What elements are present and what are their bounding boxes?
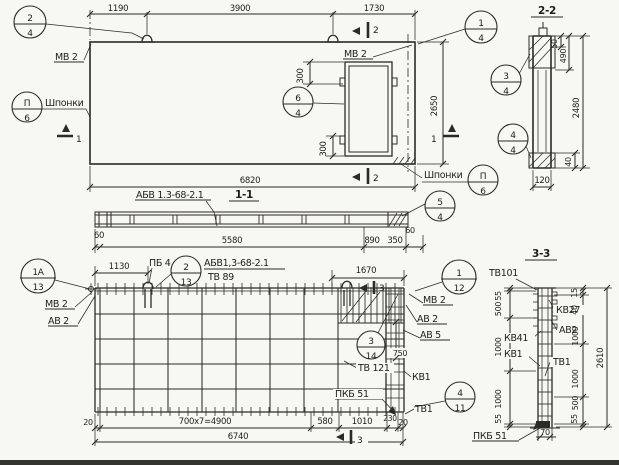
dim-3900: 3900 (230, 4, 250, 14)
callout-num: 4 (510, 131, 516, 141)
leader-lines (42, 24, 468, 182)
callout-num: 2 (183, 263, 188, 273)
dim-500: 500 (571, 396, 580, 411)
callout-1-12: 1 12 (441, 260, 477, 294)
label-mv2-right: МВ 2 (423, 295, 446, 306)
dim-350: 350 (387, 236, 402, 246)
callout-den: 6 (24, 114, 30, 124)
dim-40: 40 (564, 157, 573, 167)
label-pkb51: ПКБ 51 (335, 389, 369, 400)
label-pkb51: ПКБ 51 (473, 431, 507, 442)
dim-1000: 1000 (494, 337, 503, 356)
callout-3-4: 3 4 (491, 65, 521, 97)
cut-digit-2: 2 (373, 174, 378, 184)
dim-1000: 1000 (494, 389, 503, 408)
callout-2-13: 2 13 (171, 256, 201, 288)
callout-num: 6 (295, 94, 301, 104)
cut-arrow (448, 124, 456, 132)
callout-4-4: 4 4 (498, 124, 528, 156)
cut-digit-3: 3 (357, 436, 362, 446)
rebar-mesh-subtitle: ТВ 89 (207, 272, 234, 283)
dim-1730: 1730 (364, 4, 384, 14)
cut-digit-2: 2 (373, 26, 378, 36)
label-underlines (54, 59, 373, 62)
panel-outline (90, 42, 415, 164)
key-tooth (552, 292, 557, 296)
callout-den: 4 (295, 109, 301, 119)
callout-num: 5 (437, 198, 442, 208)
member-bars (542, 288, 548, 428)
dim-1130: 1130 (109, 262, 129, 272)
dim-1000: 1000 (571, 369, 580, 388)
callout-num: 1 (456, 269, 461, 279)
label-mv2-left: МВ 2 (45, 299, 68, 310)
callout-4-11: 4 11 (445, 382, 475, 414)
callout-den: 4 (437, 213, 443, 223)
member-core-lines (538, 70, 546, 152)
label-kv1: КВ1 (504, 349, 523, 360)
dim-490: 490 (559, 49, 568, 64)
dim-300-top: 300 (296, 68, 306, 83)
cut-arrow (336, 433, 344, 441)
label-tv101: ТВ101 (488, 268, 518, 279)
cut-arrow (62, 124, 70, 132)
dim-55: 55 (570, 414, 579, 424)
dim-20-left: 20 (83, 418, 93, 427)
dim-1010: 1010 (352, 417, 372, 427)
section-title: 3-3 (532, 248, 550, 260)
blueprint-sheet: 1190 3900 1730 6820 2650 300 300 МВ 2 МВ… (0, 0, 619, 465)
section-title: 2-2 (538, 5, 556, 17)
dimension-lines (90, 14, 443, 187)
dim-5580: 5580 (222, 236, 242, 246)
section-title: 1-1 (235, 189, 253, 201)
dim-60-left: 60 (94, 231, 104, 241)
cut-digit-1: 1 (76, 135, 81, 145)
key-hatch (393, 157, 415, 164)
dim-2650: 2650 (430, 96, 440, 116)
callout-2-4: 2 4 (14, 6, 46, 39)
mesh-mark-label: АБВ 1.3-68-2.1 (136, 190, 204, 201)
end-block-left (95, 212, 111, 227)
dim-2610: 2610 (596, 348, 606, 368)
cut-arrow (352, 27, 360, 35)
callout-den: 14 (366, 352, 377, 362)
dense-mesh-zone (338, 288, 404, 323)
dim-1190: 1190 (108, 4, 128, 14)
key-tooth (552, 316, 557, 320)
lifting-loop-pb4 (143, 282, 153, 308)
cut-digit-1: 1 (431, 135, 436, 145)
leader-lines (206, 201, 425, 226)
callout-den: 4 (478, 34, 484, 44)
section-2-2: 2-2 50 490 2480 40 120 3 4 4 4 (491, 5, 590, 191)
callout-1-4: 1 4 (465, 11, 497, 44)
callout-den: 4 (27, 29, 33, 39)
dim-15: 15 (570, 288, 579, 298)
label-kv1: КВ1 (412, 372, 431, 383)
callout-5-4: 5 4 (425, 191, 455, 223)
dim-4900: 700х7=4900 (179, 417, 231, 427)
callout-1a-13: 1А 13 (20, 259, 56, 293)
plan-view: 1190 3900 1730 6820 2650 300 300 МВ 2 МВ… (12, 4, 498, 197)
dim-1000: 1000 (571, 326, 580, 345)
dim-55: 55 (494, 291, 503, 301)
label-tv121: ТВ 121 (357, 363, 390, 374)
label-av2-left: АВ 2 (48, 316, 69, 327)
dim-60-right: 60 (405, 226, 415, 235)
dim-40: 40 (570, 305, 579, 315)
cut-digit-3: 3 (379, 284, 384, 294)
dim-6820: 6820 (240, 176, 260, 186)
label-av5: АВ 5 (420, 330, 441, 341)
callout-num: 4 (457, 389, 463, 399)
callout-num: 3 (368, 337, 373, 347)
label-tv1: ТВ1 (552, 357, 571, 368)
dim-750: 750 (393, 349, 408, 358)
rib-webs (130, 215, 349, 224)
dim-1670: 1670 (356, 266, 376, 276)
callout-num: 2 (27, 14, 32, 24)
callout-den: 13 (33, 283, 44, 293)
label-mv2-left: МВ 2 (55, 52, 78, 63)
slab-strip (95, 212, 408, 227)
blueprint-canvas: 1190 3900 1730 6820 2650 300 300 МВ 2 МВ… (0, 0, 619, 465)
callout-den: 13 (181, 278, 192, 288)
opening-outer (345, 62, 392, 156)
callout-6-4: 6 4 (283, 87, 313, 119)
dim-500: 500 (494, 302, 503, 317)
scan-edge (0, 460, 619, 465)
callout-num: 1 (478, 19, 483, 29)
member-rungs (533, 294, 552, 416)
cut-strokes (57, 22, 459, 184)
key-tooth (552, 300, 557, 304)
label-kv41: КВ41 (504, 333, 528, 344)
lifting-loops (139, 35, 341, 42)
dim-2480: 2480 (572, 98, 582, 118)
label-pb4: ПБ 4 (149, 258, 171, 269)
label-shponki-left: Шпонки (45, 98, 84, 109)
callout-den: 11 (455, 404, 466, 414)
callout-den: 6 (480, 187, 486, 197)
callout-key-right: П 6 (468, 165, 498, 197)
dim-120: 120 (534, 176, 549, 186)
callout-den: 4 (503, 87, 509, 97)
dim-580: 580 (317, 417, 332, 427)
section-1-1: АБВ 1.3-68-2.1 1-1 60 5580 890 350 60 5 … (94, 189, 455, 253)
rebar-plan: 1130 1670 750 20 700х7=4900 580 1010 230… (20, 256, 477, 446)
rebar-mesh-title: АБВ1,3-68-2.1 (204, 258, 269, 269)
dim-50: 50 (550, 39, 559, 49)
cut-arrow (352, 173, 360, 181)
callout-num: 3 (503, 72, 508, 82)
dim-55: 55 (494, 414, 503, 424)
member-outline (533, 36, 551, 168)
section-3-3: 3-3 ТВ101 КВ27 АВ2 КВ41 КВ1 ТВ1 ПКБ 51 5… (472, 248, 612, 442)
callout-den: 12 (454, 284, 465, 294)
dim-6740: 6740 (228, 432, 248, 442)
callout-key-left: П 6 (12, 92, 42, 124)
label-av2-right: АВ 2 (417, 314, 438, 325)
opening-inner (349, 66, 388, 152)
callout-3-14: 3 14 (357, 331, 385, 362)
dim-230: 230 (383, 414, 397, 423)
callout-den: 4 (510, 146, 516, 156)
callout-num: 1А (32, 268, 44, 278)
dim-300-bottom: 300 (319, 141, 329, 156)
section-cut-marks: 1 1 2 2 (57, 22, 459, 184)
label-mv2-right: МВ 2 (344, 49, 367, 60)
label-shponki-right: Шпонки (424, 170, 463, 181)
callout-num: П (480, 172, 486, 182)
callout-num: П (24, 99, 30, 109)
label-tv1: ТВ1 (414, 404, 433, 415)
